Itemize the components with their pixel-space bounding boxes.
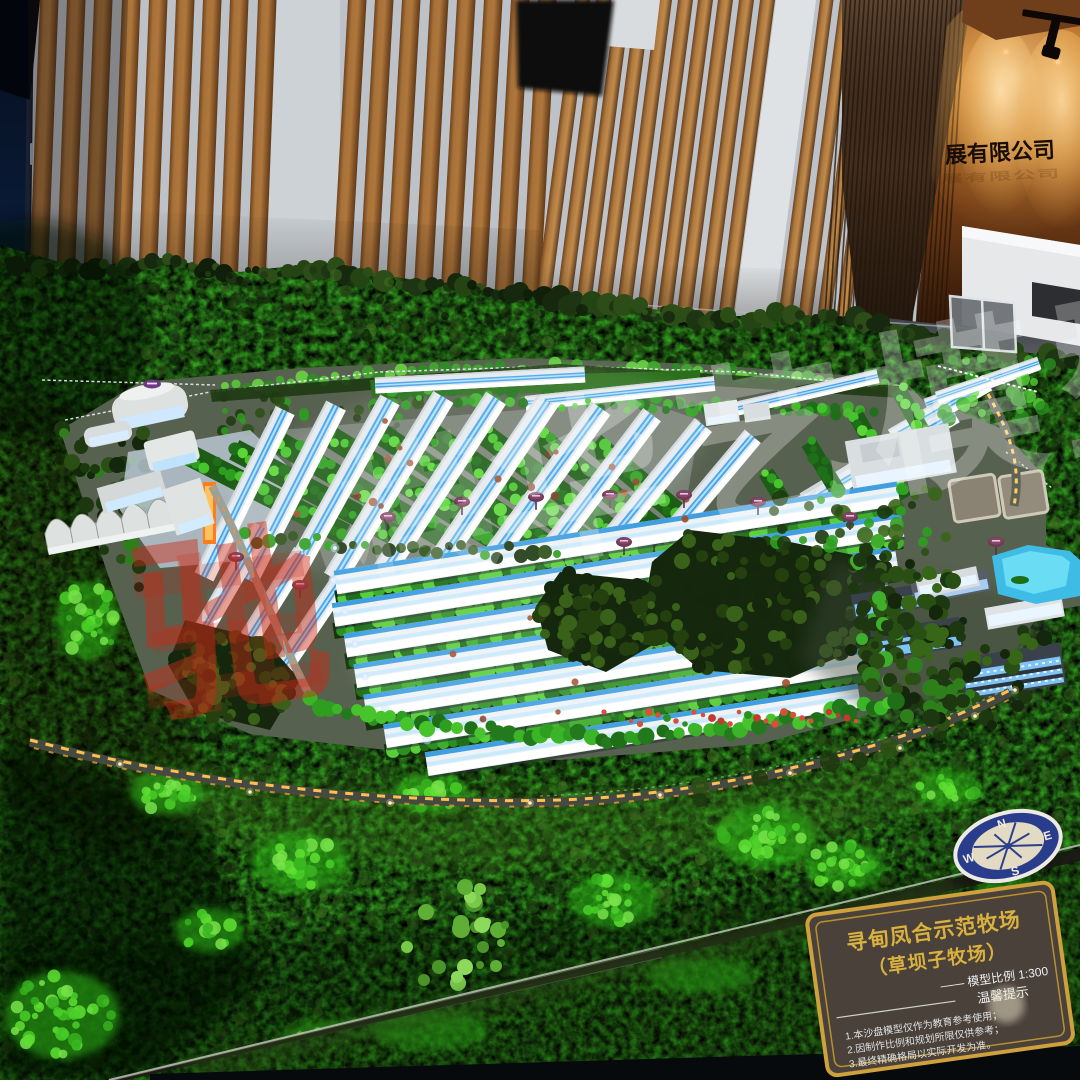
svg-text:驰: 驰: [119, 504, 342, 747]
